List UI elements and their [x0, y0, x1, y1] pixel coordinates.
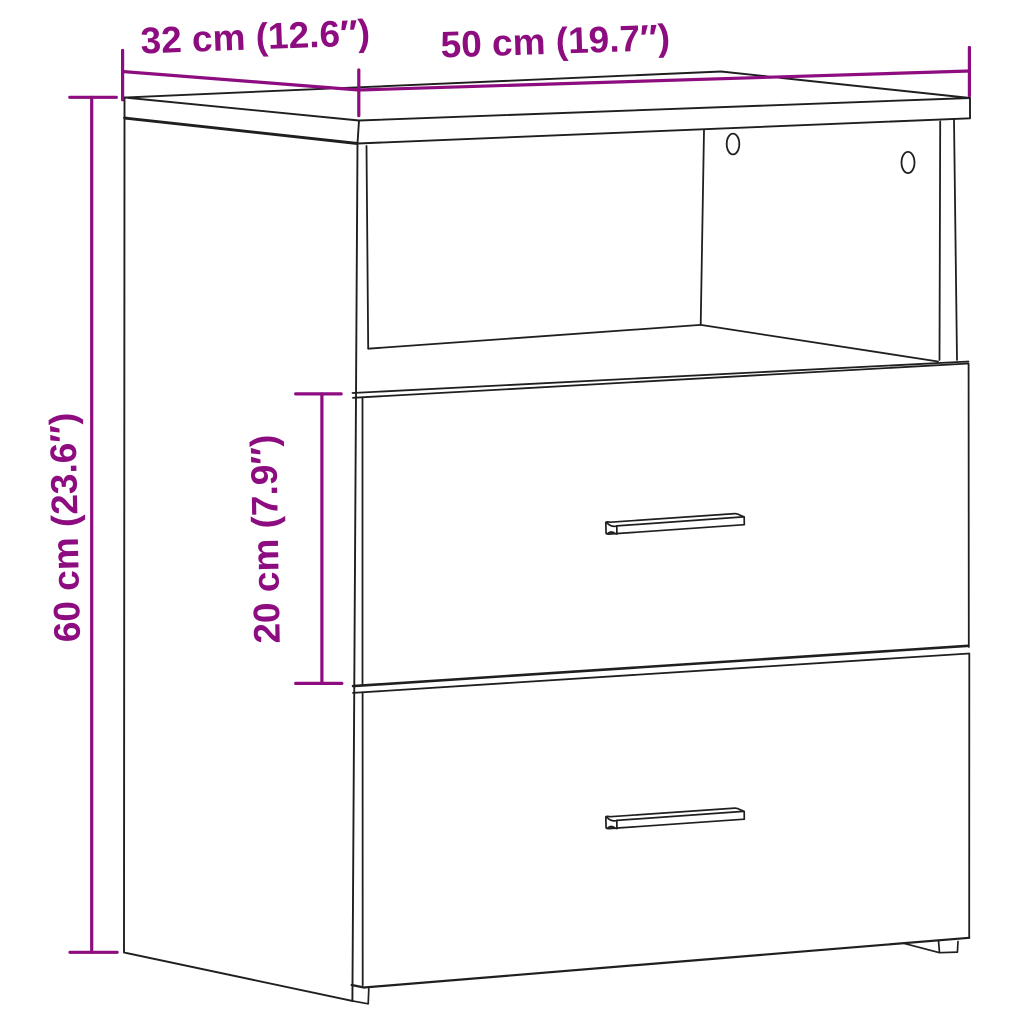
svg-text:60 cm (23.6″): 60 cm (23.6″) — [42, 412, 88, 642]
svg-text:32 cm (12.6″): 32 cm (12.6″) — [140, 12, 371, 61]
svg-text:50 cm (19.7″): 50 cm (19.7″) — [440, 17, 671, 66]
svg-text:20 cm (7.9″): 20 cm (7.9″) — [243, 434, 288, 644]
